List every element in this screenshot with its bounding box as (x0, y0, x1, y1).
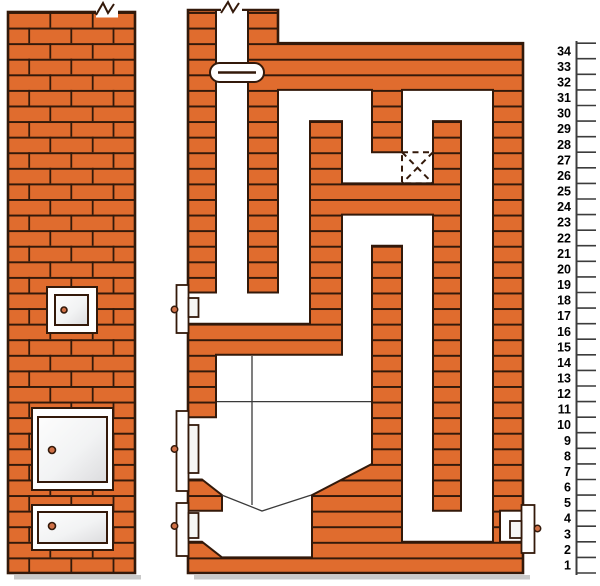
course-number: 30 (557, 107, 571, 121)
course-number: 11 (558, 403, 571, 417)
course-number: 5 (564, 496, 571, 510)
course-number: 8 (564, 449, 571, 463)
course-number: 10 (557, 418, 571, 432)
course-number: 13 (557, 372, 571, 386)
course-number: 12 (557, 387, 571, 401)
door-knob (534, 525, 540, 531)
course-number: 6 (564, 481, 571, 495)
course-number: 32 (557, 75, 571, 89)
stove-drawing: 3433323130292827262524232221201918171615… (0, 0, 600, 586)
course-number: 27 (557, 153, 571, 167)
course-number: 23 (557, 216, 571, 230)
break-mark (96, 3, 118, 18)
drop-shadow (194, 575, 530, 580)
course-number: 33 (557, 60, 571, 74)
course-number: 24 (557, 200, 571, 214)
door-knob (61, 307, 67, 313)
course-number: 2 (564, 543, 571, 557)
course-number: 26 (557, 169, 571, 183)
course-number: 7 (564, 465, 571, 479)
course-number: 16 (557, 325, 571, 339)
course-number: 20 (557, 262, 571, 276)
cross-section-view (171, 2, 540, 580)
door-knob (171, 523, 177, 529)
course-number: 22 (557, 231, 571, 245)
break-mark (221, 2, 242, 16)
course-number: 19 (557, 278, 571, 292)
course-number: 25 (557, 185, 571, 199)
door-knob (49, 447, 56, 454)
front-elevation-view (8, 3, 141, 580)
course-number: 3 (564, 527, 571, 541)
door-knob (171, 306, 177, 312)
course-number: 15 (557, 340, 571, 354)
door-knob (171, 446, 177, 452)
course-number: 9 (564, 434, 571, 448)
ash-door (32, 505, 113, 550)
course-number: 18 (557, 294, 571, 308)
damper (210, 63, 264, 82)
course-number: 31 (557, 91, 571, 105)
door-knob (49, 523, 56, 530)
course-number: 28 (557, 138, 571, 152)
course-number: 21 (557, 247, 571, 261)
course-number: 17 (557, 309, 571, 323)
course-number: 29 (557, 122, 571, 136)
fire-door (32, 408, 113, 490)
course-ruler: 3433323130292827262524232221201918171615… (557, 41, 596, 575)
course-number: 4 (564, 512, 571, 526)
course-number: 14 (557, 356, 571, 370)
course-number: 1 (564, 559, 571, 573)
soot-cleanout-door (47, 287, 97, 333)
drop-shadow (14, 575, 141, 580)
course-number: 34 (557, 44, 571, 58)
stove-drawing-page: 3433323130292827262524232221201918171615… (0, 0, 600, 586)
